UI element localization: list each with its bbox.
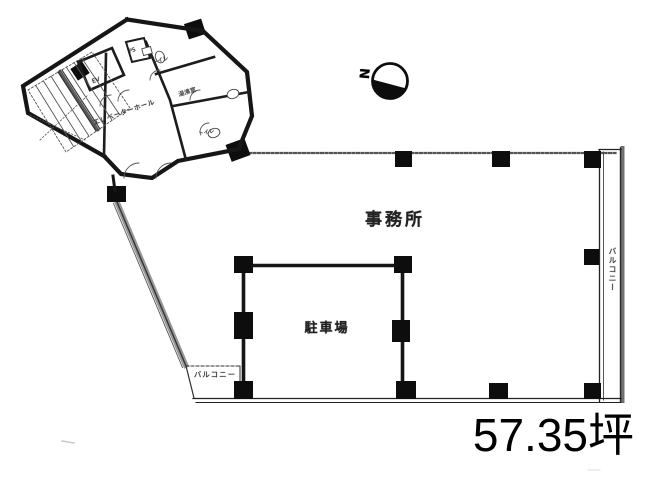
bottom-wall <box>193 399 621 403</box>
balcony-left-label: バルコニー <box>190 369 240 380</box>
floor-plan-drawing <box>0 0 650 477</box>
office-label: 事務所 <box>352 205 438 230</box>
parking-label: 駐車場 <box>288 317 366 336</box>
left-diagonal-wall <box>114 202 187 368</box>
pillars <box>70 19 601 399</box>
north-compass-icon <box>373 64 408 99</box>
floorplan-image: 事務所 駐車場 バルコニー バルコニー エレベーターホール EV PS 湯沸室 … <box>0 0 650 477</box>
area-label: 57.35坪 <box>430 410 634 461</box>
north-label: N <box>355 67 371 79</box>
balcony-right-label: バルコニー <box>602 247 618 317</box>
